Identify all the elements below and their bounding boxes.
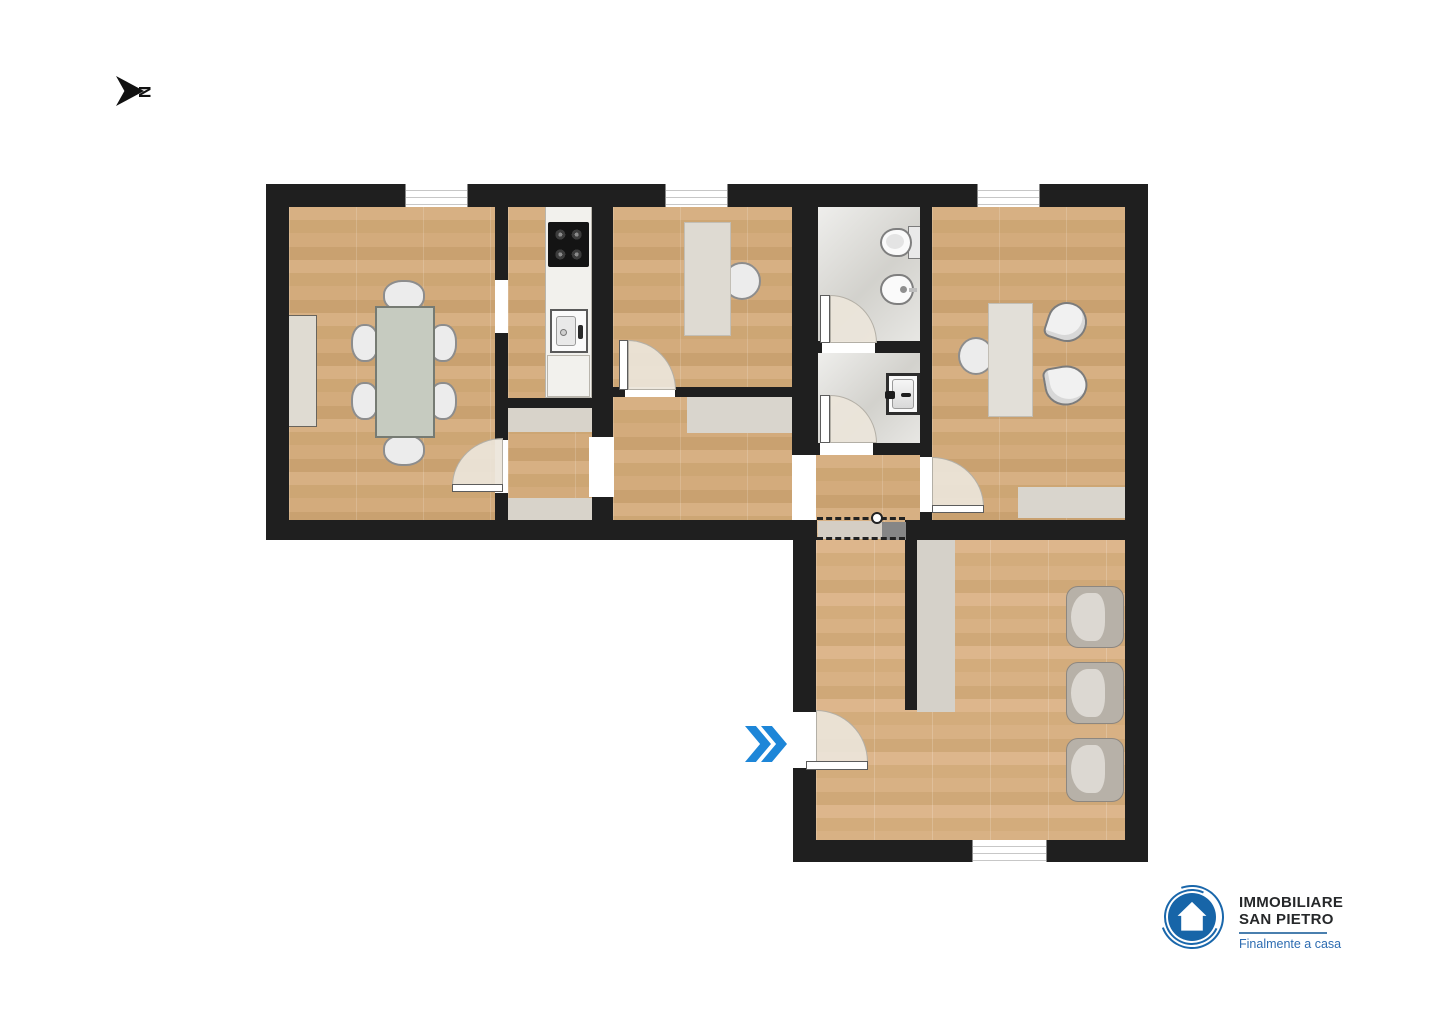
wall-lower-left <box>793 540 816 840</box>
logo: IMMOBILIARE SAN PIETRO Finalmente a casa <box>1158 882 1338 960</box>
bidet <box>880 274 914 305</box>
wc-door-leaf <box>820 395 830 443</box>
entrance-door-leaf <box>806 761 868 770</box>
hatch-dashed-top <box>817 517 905 520</box>
floor-plan-canvas: N <box>0 0 1440 1018</box>
toilet-bowl <box>880 228 912 257</box>
room2-desk <box>684 222 731 336</box>
kitchen-sink <box>550 309 588 353</box>
opening-office-door <box>920 457 932 512</box>
partition-cabinet <box>917 540 955 712</box>
dining-door-leaf <box>452 484 503 492</box>
vestibule-mat-bottom <box>508 498 592 520</box>
vestibule-mat-top <box>508 408 592 432</box>
wc-washbasin <box>886 373 920 415</box>
logo-line2: SAN PIETRO <box>1239 911 1334 928</box>
logo-tagline: Finalmente a casa <box>1239 937 1341 951</box>
wall-left <box>266 207 289 540</box>
opening-dining-kitchen <box>495 280 508 333</box>
opening-vestibule-room3 <box>589 437 614 497</box>
kitchen-base-cabinet <box>547 355 590 397</box>
opening-wc-door <box>820 443 873 455</box>
hallway-floor <box>815 455 920 520</box>
wall-kitchen-bottom <box>495 398 593 408</box>
dining-chair-bottom <box>383 434 425 466</box>
bathroom-door-leaf <box>820 295 830 343</box>
office-door-leaf <box>932 505 984 513</box>
armchair-1 <box>1066 586 1124 648</box>
kitchen-cooktop <box>548 222 589 267</box>
room2-door-leaf <box>619 340 628 390</box>
wc-faucet-icon <box>885 391 895 399</box>
wall-lower-partition <box>905 540 917 710</box>
wall-lower-bottom <box>793 840 1148 862</box>
opening-room3-hallway <box>792 455 816 520</box>
opening-entrance <box>793 712 816 768</box>
window-large-room <box>972 840 1047 862</box>
wall-rooms-bath <box>792 207 818 455</box>
office-sideboard <box>1018 487 1125 518</box>
dining-sideboard <box>289 315 317 427</box>
hatch-pull-ring <box>871 512 883 524</box>
window-living <box>405 184 468 207</box>
logo-divider <box>1239 932 1327 934</box>
window-office <box>977 184 1040 207</box>
room3-sideboard <box>687 397 792 433</box>
hatch-dashed-bottom <box>817 537 905 540</box>
kitchen-faucet-icon <box>578 325 583 339</box>
logo-line1: IMMOBILIARE <box>1239 894 1343 911</box>
window-room2 <box>665 184 728 207</box>
dining-table <box>375 306 435 438</box>
north-label: N <box>134 86 154 98</box>
armchair-3 <box>1066 738 1124 802</box>
office-table <box>988 303 1033 417</box>
wall-upper-bottom-right <box>905 520 1148 540</box>
wall-upper-bottom-left <box>266 520 817 540</box>
armchair-2 <box>1066 662 1124 724</box>
